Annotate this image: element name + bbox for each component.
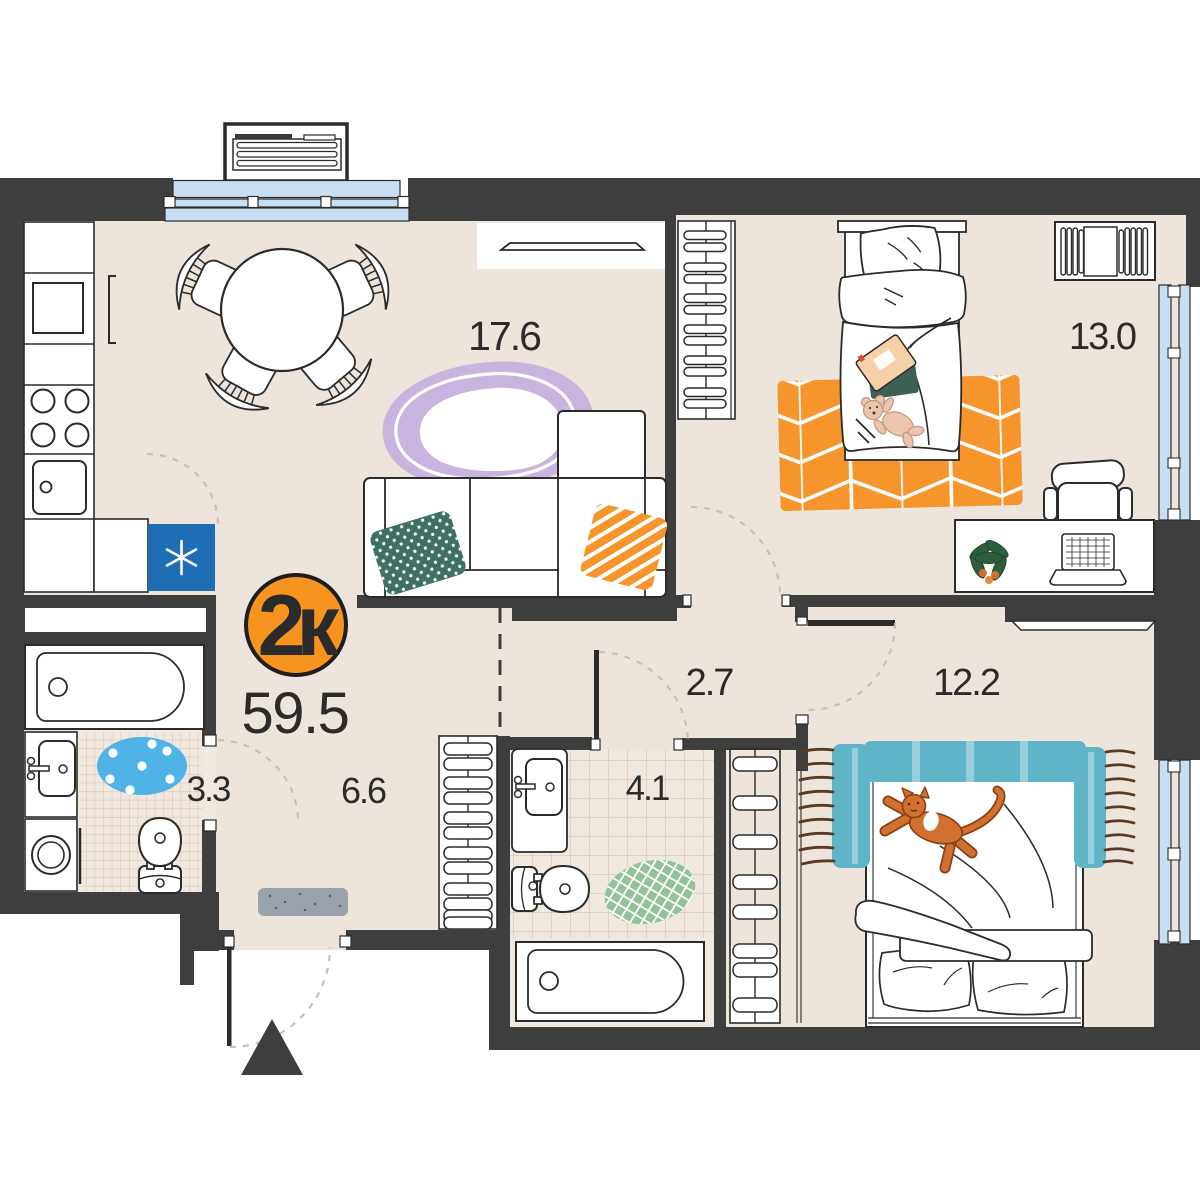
svg-text:6.6: 6.6 — [341, 770, 386, 811]
svg-text:3.3: 3.3 — [187, 770, 230, 809]
svg-text:2к: 2к — [258, 578, 341, 674]
svg-text:12.2: 12.2 — [933, 662, 1000, 704]
svg-text:17.6: 17.6 — [468, 313, 540, 359]
svg-text:2.7: 2.7 — [686, 662, 734, 704]
svg-text:59.5: 59.5 — [242, 681, 349, 746]
svg-text:13.0: 13.0 — [1069, 316, 1136, 358]
svg-text:4.1: 4.1 — [626, 769, 669, 808]
